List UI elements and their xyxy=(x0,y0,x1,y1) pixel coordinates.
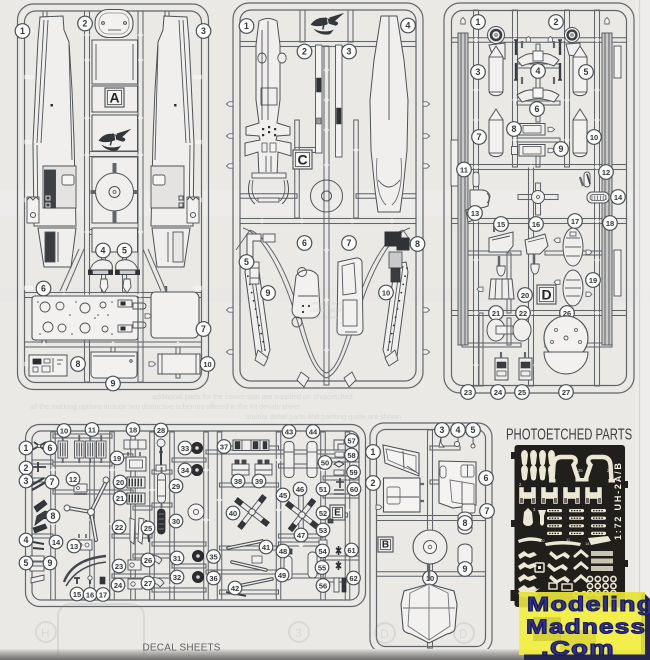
svg-text:25: 25 xyxy=(578,468,583,473)
svg-text:18: 18 xyxy=(129,426,137,435)
svg-text:10: 10 xyxy=(60,427,68,436)
svg-text:6: 6 xyxy=(535,104,540,114)
svg-text:.Com: .Com xyxy=(541,637,615,660)
svg-text:48: 48 xyxy=(279,547,287,556)
svg-text:2: 2 xyxy=(24,463,29,473)
svg-text:3: 3 xyxy=(347,47,352,57)
svg-text:6: 6 xyxy=(41,284,46,294)
svg-text:14: 14 xyxy=(585,541,590,546)
svg-text:17: 17 xyxy=(571,217,579,226)
svg-text:1: 1 xyxy=(244,21,249,31)
svg-text:6: 6 xyxy=(484,473,489,483)
svg-text:2: 2 xyxy=(83,19,88,29)
svg-text:19: 19 xyxy=(589,276,597,285)
svg-text:23: 23 xyxy=(115,562,123,571)
svg-text:16: 16 xyxy=(532,220,540,229)
svg-text:8: 8 xyxy=(76,359,81,369)
svg-text:2: 2 xyxy=(554,17,559,27)
svg-text:47: 47 xyxy=(297,531,305,540)
svg-text:37: 37 xyxy=(220,443,228,452)
svg-text:7: 7 xyxy=(50,477,55,487)
svg-text:36: 36 xyxy=(209,574,217,583)
svg-text:PHOTOETCHED PARTS: PHOTOETCHED PARTS xyxy=(506,426,632,443)
svg-text:25: 25 xyxy=(518,388,526,397)
svg-text:11: 11 xyxy=(88,426,96,435)
svg-text:3: 3 xyxy=(295,626,302,640)
svg-text:60: 60 xyxy=(350,485,358,494)
svg-text:58: 58 xyxy=(347,451,355,460)
svg-text:A: A xyxy=(109,89,119,105)
svg-text:35: 35 xyxy=(209,553,217,562)
svg-text:10: 10 xyxy=(590,133,598,142)
svg-text:32: 32 xyxy=(173,573,181,582)
svg-text:3: 3 xyxy=(440,425,445,435)
svg-text:1:72 UH-2A/B: 1:72 UH-2A/B xyxy=(613,461,623,540)
svg-text:B: B xyxy=(382,539,389,550)
svg-text:49: 49 xyxy=(278,571,286,580)
svg-text:colour option: colour option xyxy=(311,308,343,314)
svg-text:24: 24 xyxy=(114,581,123,590)
svg-text:3: 3 xyxy=(476,67,481,77)
svg-text:46: 46 xyxy=(296,485,304,494)
svg-text:D: D xyxy=(380,627,389,641)
svg-text:10: 10 xyxy=(203,360,211,369)
svg-text:4: 4 xyxy=(101,246,106,256)
svg-text:20: 20 xyxy=(521,291,529,300)
svg-text:1: 1 xyxy=(24,443,29,453)
svg-text:52: 52 xyxy=(319,509,327,518)
svg-text:61: 61 xyxy=(347,546,355,555)
svg-text:39: 39 xyxy=(255,477,263,486)
svg-text:3: 3 xyxy=(201,26,206,36)
svg-text:34: 34 xyxy=(181,466,190,475)
svg-text:56: 56 xyxy=(319,582,327,591)
svg-text:4: 4 xyxy=(456,425,461,435)
svg-text:24: 24 xyxy=(494,388,503,397)
svg-text:interior detail parts and pain: interior detail parts and painting guide… xyxy=(246,412,401,421)
svg-text:22: 22 xyxy=(519,309,527,318)
svg-text:59: 59 xyxy=(349,468,357,477)
svg-text:51: 51 xyxy=(319,485,327,494)
svg-text:44: 44 xyxy=(309,428,318,437)
svg-text:21: 21 xyxy=(492,309,500,318)
svg-text:18: 18 xyxy=(606,219,614,228)
svg-text:5: 5 xyxy=(24,558,29,568)
svg-text:29: 29 xyxy=(172,482,180,491)
svg-text:13: 13 xyxy=(70,542,78,551)
svg-text:21: 21 xyxy=(116,494,124,503)
svg-text:15: 15 xyxy=(497,220,505,229)
svg-text:7: 7 xyxy=(347,238,352,248)
svg-text:20: 20 xyxy=(116,478,124,487)
svg-text:select interior: select interior xyxy=(311,301,344,307)
svg-text:12: 12 xyxy=(602,168,610,177)
svg-text:additional parts for the conve: additional parts for the conversion are … xyxy=(152,392,353,401)
svg-text:25: 25 xyxy=(144,524,152,533)
svg-text:17: 17 xyxy=(99,591,107,600)
svg-text:Modeling: Modeling xyxy=(527,593,650,615)
svg-text:27: 27 xyxy=(144,579,152,588)
svg-text:9: 9 xyxy=(463,564,468,574)
svg-text:D: D xyxy=(541,286,551,302)
svg-text:25: 25 xyxy=(607,468,612,473)
svg-text:26: 26 xyxy=(144,556,152,565)
svg-text:41: 41 xyxy=(262,543,270,552)
svg-text:1: 1 xyxy=(371,447,376,457)
svg-text:15: 15 xyxy=(73,590,81,599)
svg-text:62: 62 xyxy=(349,574,357,583)
svg-text:13: 13 xyxy=(471,209,479,218)
svg-text:14: 14 xyxy=(52,538,61,547)
svg-text:50: 50 xyxy=(321,459,329,468)
svg-text:7: 7 xyxy=(485,506,490,516)
svg-text:9: 9 xyxy=(559,144,564,154)
svg-text:Madness: Madness xyxy=(526,615,646,637)
svg-text:1: 1 xyxy=(476,17,481,27)
svg-text:7: 7 xyxy=(201,324,206,334)
svg-text:H: H xyxy=(41,626,50,640)
svg-text:12: 12 xyxy=(69,475,77,484)
svg-text:8: 8 xyxy=(512,124,517,134)
svg-text:9: 9 xyxy=(111,379,116,389)
svg-text:3: 3 xyxy=(24,476,29,486)
svg-text:5: 5 xyxy=(584,67,589,77)
svg-text:4: 4 xyxy=(536,66,541,76)
svg-text:16: 16 xyxy=(86,591,94,600)
svg-text:8: 8 xyxy=(463,518,468,528)
svg-text:22: 22 xyxy=(115,523,123,532)
svg-text:38: 38 xyxy=(234,477,242,486)
svg-text:28: 28 xyxy=(157,426,165,435)
svg-text:19: 19 xyxy=(113,454,121,463)
svg-text:57: 57 xyxy=(347,437,355,446)
svg-text:C: C xyxy=(297,151,307,167)
svg-text:4: 4 xyxy=(24,535,29,545)
svg-text:8: 8 xyxy=(415,239,420,249)
svg-text:23: 23 xyxy=(464,388,472,397)
svg-text:54: 54 xyxy=(318,547,327,556)
svg-text:2: 2 xyxy=(302,47,307,57)
svg-text:53: 53 xyxy=(319,526,327,535)
svg-text:9: 9 xyxy=(266,288,271,298)
svg-text:10: 10 xyxy=(540,538,545,543)
svg-text:8: 8 xyxy=(51,511,56,521)
svg-text:E: E xyxy=(334,507,341,518)
svg-text:as shown: as shown xyxy=(314,315,338,321)
svg-text:31: 31 xyxy=(173,554,181,563)
svg-text:7: 7 xyxy=(477,132,482,142)
svg-text:11: 11 xyxy=(460,166,468,175)
svg-text:6: 6 xyxy=(48,443,53,453)
svg-text:D: D xyxy=(459,627,468,641)
svg-text:2: 2 xyxy=(371,478,376,488)
svg-text:33: 33 xyxy=(181,444,189,453)
svg-text:27: 27 xyxy=(562,388,570,397)
svg-text:4: 4 xyxy=(406,21,411,31)
svg-text:42: 42 xyxy=(231,584,239,593)
svg-text:all the marking options includ: all the marking options include two dist… xyxy=(30,402,300,411)
svg-text:DECAL SHEETS: DECAL SHEETS xyxy=(143,643,221,654)
svg-text:1: 1 xyxy=(20,26,25,36)
svg-text:45: 45 xyxy=(279,491,287,500)
svg-text:10: 10 xyxy=(382,289,390,298)
svg-text:43: 43 xyxy=(285,428,293,437)
svg-text:5: 5 xyxy=(244,257,249,267)
svg-text:40: 40 xyxy=(229,509,237,518)
svg-text:55: 55 xyxy=(318,564,326,573)
svg-text:14: 14 xyxy=(614,193,623,202)
svg-text:6: 6 xyxy=(302,238,307,248)
svg-text:9: 9 xyxy=(48,558,53,568)
svg-text:30: 30 xyxy=(172,517,180,526)
svg-text:5: 5 xyxy=(122,246,127,256)
svg-text:5: 5 xyxy=(471,425,476,435)
